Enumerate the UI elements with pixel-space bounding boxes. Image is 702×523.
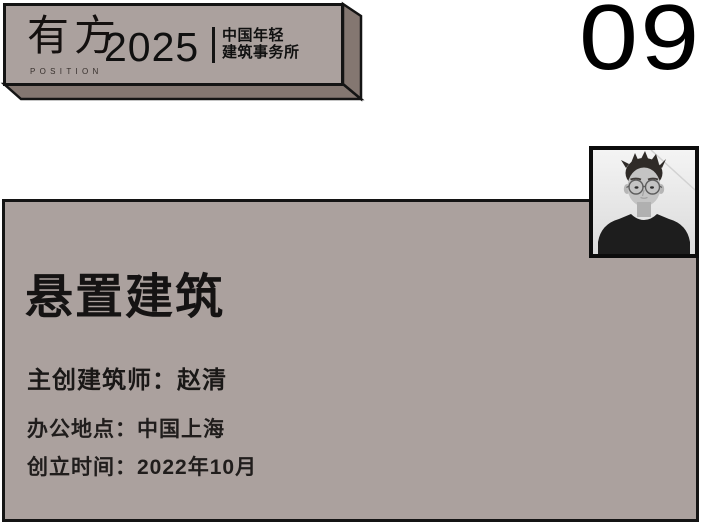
banner-subtitle: 中国年轻 建筑事务所 — [222, 27, 300, 61]
architect-portrait-photo — [589, 146, 699, 258]
banner-subtitle-line1: 中国年轻 — [222, 27, 300, 44]
architect-value: 赵清 — [177, 367, 227, 394]
logo-english: POSITION — [30, 67, 103, 76]
founded-label: 创立时间： — [27, 456, 137, 479]
banner-year: 2025 — [104, 27, 199, 68]
info-row-architect: 主创建筑师：赵清 — [27, 360, 227, 395]
issue-number: 09 — [579, 0, 701, 84]
architect-label: 主创建筑师： — [27, 367, 177, 394]
portrait-illustration — [593, 150, 695, 254]
studio-name-title: 悬置建筑 — [25, 272, 225, 325]
banner-divider-line — [212, 27, 215, 63]
founded-value: 2022年10月 — [137, 456, 257, 479]
info-row-founded: 创立时间：2022年10月 — [27, 451, 257, 481]
location-value: 中国上海 — [137, 418, 225, 441]
banner-subtitle-line2: 建筑事务所 — [222, 44, 300, 61]
poster-page: 有方 POSITION 2025 中国年轻 建筑事务所 09 — [0, 0, 702, 523]
info-row-location: 办公地点：中国上海 — [27, 413, 225, 443]
location-label: 办公地点： — [27, 418, 137, 441]
position-logo-banner: 有方 POSITION 2025 中国年轻 建筑事务所 — [0, 0, 368, 106]
